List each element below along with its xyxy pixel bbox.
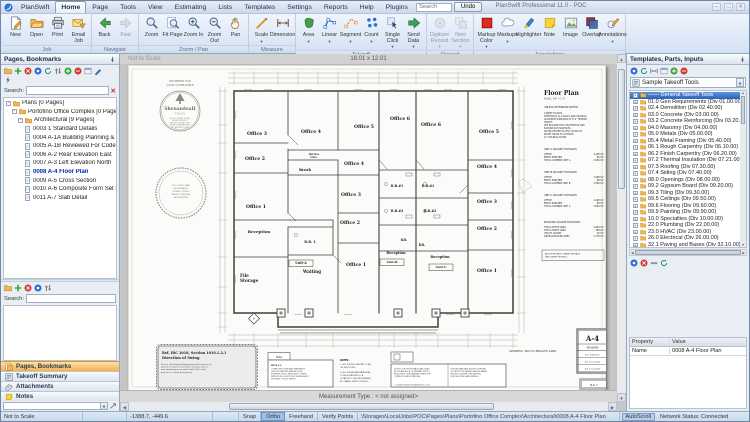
sheet-text: REVISIONS xyxy=(587,347,599,350)
expander-icon[interactable]: + xyxy=(633,210,638,215)
scroll-down-icon[interactable]: ▼ xyxy=(617,393,626,402)
room-label: Waiting xyxy=(302,269,321,274)
dropdown-arrow-icon: ▾ xyxy=(349,39,351,45)
refresh-icon[interactable] xyxy=(660,259,668,267)
ribbon-group-takeoff: Area▾ Linear▾ Segment▾ Count▾ xyxy=(296,14,427,53)
menu-tab-strip: PlanSwift Home Page Tools View Estimatin… xyxy=(15,1,414,13)
quick-action-icon[interactable] xyxy=(4,76,12,84)
expander-icon[interactable]: + xyxy=(633,100,638,105)
expander-icon[interactable]: - xyxy=(18,118,23,123)
folder-icon xyxy=(640,138,647,144)
remove-circle-icon[interactable] xyxy=(680,67,688,75)
pages-tree: - Plans [0 Pages] - Portofino Office Com… xyxy=(3,97,117,279)
template-tree-item[interactable]: + 09.2 Gypsum Board (Div 09.20.00) xyxy=(630,183,746,190)
sheet-text: CODE COMPLIANCE xyxy=(166,83,194,87)
sort-icon[interactable] xyxy=(44,284,52,292)
sheet-text: BUILDING SQUARE FOOTAGES: xyxy=(544,221,581,224)
folder-icon xyxy=(640,190,647,196)
expander-icon[interactable]: + xyxy=(633,126,638,131)
sheet-text: 10' CEILINGS DOWN xyxy=(544,136,566,139)
takeoff-tools-icon xyxy=(632,79,640,87)
verify-points-mode[interactable]: Verify Points xyxy=(318,412,358,421)
sheet-text: TOTAL COVERED UNIT A xyxy=(544,159,571,162)
dimension-icon xyxy=(276,16,290,33)
pages-bookmarks-panel: Pages, Bookmarks Search: xyxy=(1,54,120,411)
sheet-text: REVIEW DOES NOT xyxy=(172,120,187,122)
pan-hand-icon xyxy=(229,16,243,33)
dropdown-arrow-icon: ▾ xyxy=(370,39,372,45)
annotations-button[interactable]: Annotations▾ xyxy=(602,15,623,50)
dropdown-arrow-icon: ▾ xyxy=(611,39,613,45)
page-tree-item[interactable]: - Architectural [9 Pages] xyxy=(4,116,116,125)
email-job-button[interactable]: Email Job xyxy=(68,15,89,45)
linear-icon xyxy=(323,16,337,33)
zoom-in-button[interactable]: Zoom In xyxy=(183,15,204,45)
scroll-right-icon[interactable]: ▶ xyxy=(608,402,617,411)
room-label: R.R. 1 xyxy=(304,240,316,244)
back-button[interactable]: Back xyxy=(94,15,115,45)
tab-estimating[interactable]: Estimating xyxy=(169,1,213,13)
property-row[interactable]: Name 0008 A-4 Floor Plan xyxy=(630,347,746,356)
expander-icon[interactable]: - xyxy=(12,109,17,114)
single-click-button[interactable]: Single Click▾ xyxy=(382,15,403,50)
ribbon-group-navigate: Back Fwd Navigate xyxy=(92,14,139,53)
scroll-down-icon[interactable]: ▼ xyxy=(741,243,744,247)
expander-icon[interactable]: + xyxy=(633,132,638,137)
digitizer-record-button[interactable]: Digitizer Record▾ xyxy=(429,15,450,50)
accordion-notes[interactable]: Notes xyxy=(1,391,119,401)
room-label: R.R.#2 xyxy=(391,209,403,213)
dropdown-arrow-icon: ▾ xyxy=(438,44,440,50)
dropdown-arrow-icon: ▾ xyxy=(260,39,262,45)
room-label: Unit-B xyxy=(386,260,398,264)
new-window-icon[interactable] xyxy=(84,67,92,75)
note-button[interactable]: Note xyxy=(539,15,560,50)
count-button[interactable]: Count▾ xyxy=(361,15,382,50)
record-icon[interactable] xyxy=(34,284,42,292)
delete-icon[interactable] xyxy=(640,259,648,267)
room-label: Kit. xyxy=(419,243,426,247)
room-label: Office 3 xyxy=(247,131,267,137)
remove-circle-icon[interactable] xyxy=(74,67,82,75)
new-section-button[interactable]: New Section▾ xyxy=(450,15,471,50)
add-circle-icon[interactable] xyxy=(64,67,72,75)
scroll-left-icon[interactable]: ◀ xyxy=(631,251,634,255)
property-value[interactable]: 0008 A-4 Floor Plan xyxy=(670,348,746,354)
ribbon-group-job: New Open Print Email Job Job xyxy=(3,14,92,53)
record-icon[interactable] xyxy=(630,67,638,75)
templates-vertical-scrollbar[interactable]: ▲ ▼ xyxy=(740,91,746,247)
tab-settings[interactable]: Settings xyxy=(281,1,318,13)
scroll-left-icon[interactable]: ◀ xyxy=(120,402,129,411)
expander-icon[interactable]: + xyxy=(633,93,638,98)
sheet-text: direction of egress travel where serving… xyxy=(161,366,209,369)
folder-icon xyxy=(25,117,32,124)
expander-icon[interactable]: + xyxy=(633,243,638,248)
zoom-icon xyxy=(145,16,159,33)
template-tree-item[interactable]: + 05.4 Metal Framing (Div 05.40.00) xyxy=(630,138,746,145)
tab-plugins[interactable]: Plugins xyxy=(380,1,414,13)
sheet-text: 1,584 S.F. xyxy=(593,159,604,162)
sheet-text: ON PHOTOCELL. xyxy=(340,367,357,369)
ribbon-group-annotations: Markup Color▾ Markups▾ Highlighter Note xyxy=(474,14,626,53)
sheet-text: ANY REQUIRED xyxy=(174,196,189,199)
room-label: R.R.#1 xyxy=(391,184,403,188)
canvas-scale-label: Not to Scale xyxy=(128,54,161,65)
sheet-text: NOTE #1: xyxy=(271,365,282,367)
collapse-icon[interactable] xyxy=(650,259,658,267)
drawing-canvas: Not to Scale 18.01 x 12.01 xyxy=(120,54,626,411)
page-icon xyxy=(24,134,31,141)
scale-icon xyxy=(255,16,269,33)
sheet-text: 1,584 S.F. xyxy=(593,205,604,208)
dropdown-arrow-icon: ▾ xyxy=(328,39,330,45)
room-label: Office 5 xyxy=(479,129,499,135)
sheet-text: A.G. 8-28-2021 xyxy=(585,354,600,357)
page-tree-item[interactable]: 0006 A-2 Rear Elevation East xyxy=(4,151,116,160)
room-label: Reception xyxy=(248,229,271,234)
vertical-scroll-thumb[interactable] xyxy=(618,69,625,189)
add-page-icon[interactable] xyxy=(14,67,22,75)
expander-icon[interactable]: + xyxy=(633,119,638,124)
folder-icon xyxy=(640,157,647,163)
page-tree-item[interactable]: 0007 A-3 Left Elevation North xyxy=(4,159,116,168)
tab-home[interactable]: Home xyxy=(55,1,86,13)
expander-icon[interactable]: + xyxy=(633,197,638,202)
page-tree-item[interactable]: 0009 A-5 Cross Section xyxy=(4,176,116,185)
ortho-mode[interactable]: Ortho xyxy=(261,412,285,421)
pin-icon[interactable] xyxy=(739,56,746,63)
fit-page-button[interactable]: Fit Page xyxy=(162,15,183,45)
count-icon xyxy=(365,16,379,33)
pages-toolbar-row2 xyxy=(1,76,119,85)
room-label: Office 4 xyxy=(301,129,322,135)
vertical-scroll-thumb[interactable] xyxy=(741,96,745,124)
folder-icon xyxy=(640,222,647,228)
sheet-text: LOCATION TO BE DETERMINED xyxy=(340,377,371,380)
zoom-button[interactable]: Zoom xyxy=(141,15,162,45)
horizontal-scroll-thumb[interactable] xyxy=(229,403,494,410)
value-column-header[interactable]: Value xyxy=(670,339,746,345)
bookmarks-toolbar xyxy=(1,282,119,293)
note-icon xyxy=(543,16,557,33)
folder-icon xyxy=(640,209,647,215)
sheet-text: persons or a Group H occupancy. xyxy=(161,371,193,374)
template-tree-item[interactable]: + 03.2 Concrete Reinforcing (Div 03.20.0… xyxy=(630,118,746,125)
accordion-pages-bookmarks[interactable]: Pages, Bookmarks xyxy=(1,361,119,371)
expander-icon[interactable]: + xyxy=(633,171,638,176)
markup-color-button[interactable]: Markup Color▾ xyxy=(476,15,497,50)
folder-icon xyxy=(640,99,647,105)
sheet-text: UNLESS OTHERWISE NOTED: xyxy=(544,106,579,109)
property-column-header[interactable]: Property xyxy=(630,339,670,345)
scale-button[interactable]: Scale▾ xyxy=(251,15,272,45)
templates-panel-title: Templates, Parts, Inputs xyxy=(630,56,703,63)
room-label: Office 6 xyxy=(421,122,441,128)
horizontal-scroll-thumb[interactable] xyxy=(635,250,742,255)
record-icon[interactable] xyxy=(34,67,42,75)
folder-icon xyxy=(640,118,647,124)
accordion-attachments[interactable]: Attachments xyxy=(1,381,119,391)
expander-icon[interactable]: + xyxy=(633,145,638,150)
folder-icon xyxy=(640,105,647,111)
folder-icon xyxy=(640,203,647,209)
folder-icon[interactable] xyxy=(4,67,12,75)
sheet-text: 2. ALL PHONE AND DATA WIRE xyxy=(340,371,371,374)
templates-tree: + —— General Takeoff Tools + 01.0 Gen Re… xyxy=(630,92,746,248)
folder-icon xyxy=(640,131,647,137)
record-icon[interactable] xyxy=(630,259,638,267)
expander-icon[interactable]: + xyxy=(633,178,638,183)
page-tree-item[interactable]: 0004 A-1A Building Planning & Des... xyxy=(4,133,116,142)
panel-combo-box[interactable]: ▾ xyxy=(3,402,108,410)
room-label: Office 2 xyxy=(245,156,265,162)
property-grid: Property Value Name 0008 A-4 Floor Plan xyxy=(629,337,747,409)
blueprint-floor-plan[interactable]: Office 3Office 2Office 1ReceptionFileSto… xyxy=(128,65,606,391)
print-button[interactable]: Print xyxy=(47,15,68,45)
sheet-text: Direction of Swing xyxy=(162,356,200,360)
scroll-up-icon[interactable]: ▲ xyxy=(741,91,744,95)
room-label: Reception xyxy=(386,251,406,255)
folder-icon xyxy=(640,177,647,183)
resize-grip-icon[interactable] xyxy=(109,402,117,410)
tab-page[interactable]: Page xyxy=(86,1,114,13)
expander-icon[interactable]: - xyxy=(6,101,11,106)
templates-toolbar xyxy=(627,65,749,76)
sheet-text: 1,584 S.F. xyxy=(593,182,604,185)
expander-icon[interactable]: + xyxy=(633,191,638,196)
dimension-button[interactable]: Dimension xyxy=(272,15,293,45)
template-tree-item[interactable]: + 32.1 Paving and Bases (Div 32.10.00) xyxy=(630,242,746,249)
pin-icon[interactable] xyxy=(109,56,116,63)
clear-search-icon[interactable]: ✕ xyxy=(111,87,116,95)
takeoff-tools-dropdown[interactable]: Sample Takeoff Tools ▾ xyxy=(630,77,746,88)
page-tree-item[interactable]: 0011 A-7 Slab Detail xyxy=(4,194,116,203)
markups-cloud-icon xyxy=(501,16,515,33)
template-tree-item[interactable]: + 01.0 Gen Requirements (Div 01.00.00) xyxy=(630,99,746,106)
expander-icon[interactable]: + xyxy=(633,230,638,235)
ribbon: New Open Print Email Job Job xyxy=(1,14,749,54)
page-size-label: 18.01 x 12.01 xyxy=(350,56,386,62)
page-tree-item[interactable]: 0008 A-4 Floor Plan xyxy=(4,168,116,177)
zoom-out-button[interactable]: Zoom Out xyxy=(204,15,225,45)
markup-color-icon xyxy=(480,16,494,33)
area-icon xyxy=(302,16,316,33)
room-label: Office 2 xyxy=(340,220,360,226)
sheet-text: UTIL. CLOSET SHALL xyxy=(171,184,191,187)
bookmarks-search-input[interactable] xyxy=(26,294,116,303)
scroll-right-icon[interactable]: ▶ xyxy=(742,251,745,255)
freehand-mode[interactable]: Freehand xyxy=(285,412,318,421)
takeoff-summary-icon xyxy=(5,373,13,381)
pages-search-input[interactable] xyxy=(26,86,109,95)
blueprint-page[interactable]: Office 3Office 2Office 1ReceptionFileSto… xyxy=(128,65,606,391)
highlighter-icon xyxy=(522,16,536,33)
single-click-icon xyxy=(386,16,400,33)
planswift-window: PlanSwift Home Page Tools View Estimatin… xyxy=(0,0,750,422)
sheet-text: A-4 xyxy=(585,334,599,343)
page-icon xyxy=(24,160,31,167)
room-label: Unit-C xyxy=(436,265,448,269)
add-bookmark-icon[interactable] xyxy=(14,284,22,292)
close-button[interactable]: ✕ xyxy=(736,3,745,11)
expander-icon[interactable]: + xyxy=(633,184,638,189)
page-icon xyxy=(24,169,31,176)
templates-parts-inputs-panel: Templates, Parts, Inputs Sample Takeoff … xyxy=(626,54,749,411)
template-tree-item[interactable]: + 06.1 Rough Carpentry (Div 06.10.00) xyxy=(630,144,746,151)
tab-view[interactable]: View xyxy=(142,1,169,13)
sheet-text: FROM COMPLYING WITH xyxy=(170,125,190,127)
tab-planswift[interactable]: PlanSwift xyxy=(15,1,55,13)
edit-icon[interactable] xyxy=(94,67,102,75)
page-tree-item[interactable]: 0010 A-6 Composite Form Set Plan xyxy=(4,185,116,194)
send-data-button[interactable]: Send Data▾ xyxy=(403,15,424,50)
folder-icon xyxy=(640,235,647,241)
expander-icon[interactable]: + xyxy=(633,204,638,209)
page-tree-item[interactable]: 0005 A-1B Reviewed For Code Co... xyxy=(4,142,116,151)
sheet-text: ADDRESS: 284 CO ENGLISH LANE. xyxy=(509,349,557,353)
ribbon-group-label: Measure xyxy=(249,45,295,53)
resize-columns-icon[interactable] xyxy=(650,67,658,75)
open-button[interactable]: Open xyxy=(26,15,47,45)
maximize-button[interactable]: □ xyxy=(724,3,733,11)
page-tree-item[interactable]: - Plans [0 Pages] xyxy=(4,99,116,108)
folder-icon xyxy=(640,112,647,118)
tab-tools[interactable]: Tools xyxy=(114,1,142,13)
sheet-text: 4,778 S.F. xyxy=(593,235,604,238)
pages-icon xyxy=(5,363,13,371)
refresh-icon[interactable] xyxy=(640,67,648,75)
expander-icon[interactable]: + xyxy=(633,236,638,241)
minimize-button[interactable]: ─ xyxy=(712,3,721,11)
room-label: Office 3 xyxy=(341,192,361,198)
overlay-icon xyxy=(585,16,599,33)
sheet-text: GROSS BUILDING AREA xyxy=(544,235,570,238)
expander-icon[interactable]: + xyxy=(633,223,638,228)
sheet-text: UNIT C SQUARE FOOTAGES: xyxy=(544,194,577,197)
template-tree-item[interactable]: + 06.2 Finish Carpentry (Div 06.20.00) xyxy=(630,151,746,158)
refresh-icon[interactable] xyxy=(44,67,52,75)
sheet-text: BY OWNER. VERIFY IN FIELD. xyxy=(340,381,369,383)
new-button[interactable]: New xyxy=(5,15,26,45)
image-icon xyxy=(564,16,578,33)
template-tree-item[interactable]: + 07.2 Thermal Insulation (Div 07.21.00) xyxy=(630,157,746,164)
sheet-text: 1. ALL PORCH LIGHTING TO BE xyxy=(340,363,371,366)
property-name: Name xyxy=(630,348,670,354)
window-controls: ─ □ ✕ xyxy=(712,3,745,11)
sheet-text: A.G. 10-11-2021 xyxy=(585,361,601,364)
tab-lists[interactable]: Lists xyxy=(212,1,238,13)
chevron-down-icon[interactable]: ▾ xyxy=(736,78,744,87)
expander-icon[interactable]: + xyxy=(633,165,638,170)
tab-templates[interactable]: Templates xyxy=(238,1,281,13)
expander-icon[interactable]: + xyxy=(633,113,638,118)
delete-icon[interactable] xyxy=(24,284,32,292)
ribbon-group-zoom-pan: Zoom Fit Page Zoom In Zoom Out xyxy=(139,14,249,53)
sheet-text: TOTAL COVERED UNIT B xyxy=(544,182,571,185)
room-label: Reception xyxy=(430,255,450,259)
folder-icon xyxy=(640,92,647,98)
sheet-text: Floor Plan xyxy=(544,90,579,97)
new-window-icon[interactable] xyxy=(660,67,668,75)
folder-icon[interactable] xyxy=(4,284,12,292)
linear-button[interactable]: Linear▾ xyxy=(319,15,340,50)
templates-horizontal-scrollbar[interactable]: ◀ ▶ xyxy=(629,249,747,256)
tab-reports[interactable]: Reports xyxy=(318,1,354,13)
folder-icon xyxy=(640,151,647,157)
canvas-horizontal-scrollbar[interactable]: ◀ ▶ xyxy=(120,402,617,411)
page-tree-item[interactable]: - Portofino Office Complex [0 Pages] xyxy=(4,108,116,117)
sheet-text: TO BE HOME RUN TO A xyxy=(340,374,364,377)
area-button[interactable]: Area▾ xyxy=(298,15,319,50)
expander-icon[interactable]: + xyxy=(633,106,638,111)
canvas-vertical-scrollbar[interactable]: ▲ ▼ xyxy=(617,54,626,402)
parts-toolbar xyxy=(627,257,749,268)
folder-icon xyxy=(19,108,26,115)
sheet-text: UNIT A SQUARE FOOTAGES: xyxy=(544,148,577,151)
search-label: Search: xyxy=(4,296,24,302)
accordion-takeoff-summary[interactable]: Takeoff Summary xyxy=(1,371,119,381)
room-label: Break xyxy=(299,168,312,172)
bookmarks-list[interactable] xyxy=(3,305,117,361)
image-button[interactable]: Image xyxy=(560,15,581,50)
autoscroll-toggle[interactable]: AutoScroll xyxy=(622,413,656,421)
expander-icon[interactable]: + xyxy=(633,158,638,163)
page-icon xyxy=(24,194,31,201)
folder-icon xyxy=(640,125,647,131)
templates-tree-container: + —— General Takeoff Tools + 01.0 Gen Re… xyxy=(629,90,747,248)
chevron-down-icon[interactable]: ▾ xyxy=(100,403,107,409)
sheet-text: MAKE NO DISPOSAL xyxy=(172,193,192,196)
delete-icon[interactable] xyxy=(24,67,32,75)
expander-icon[interactable]: + xyxy=(633,217,638,222)
page-tree-item[interactable]: 0003 1 Standard Details xyxy=(4,125,116,134)
forward-button[interactable]: Fwd xyxy=(115,15,136,45)
sort-icon[interactable] xyxy=(54,67,62,75)
folder-icon xyxy=(640,164,647,170)
expander-icon[interactable]: + xyxy=(633,152,638,157)
ribbon-group-label: Zoom / Pan xyxy=(139,45,248,53)
annotations-icon xyxy=(606,16,620,33)
room-label: Unit-A xyxy=(295,261,307,265)
room-label: Office 4 xyxy=(344,161,365,167)
highlighter-button[interactable]: Highlighter xyxy=(518,15,539,50)
snap-mode[interactable]: Snap xyxy=(239,412,261,421)
dropdown-arrow-icon: ▾ xyxy=(506,39,508,45)
segment-button[interactable]: Segment▾ xyxy=(340,15,361,50)
forward-arrow-icon xyxy=(119,16,133,33)
note-icon xyxy=(5,393,13,401)
room-label: Office 3 xyxy=(477,199,497,205)
add-circle-icon[interactable] xyxy=(670,67,678,75)
room-label: Office 4 xyxy=(477,164,498,170)
tab-help[interactable]: Help xyxy=(354,1,380,13)
ribbon-search-input[interactable] xyxy=(416,3,452,12)
ribbon-group-measure: Scale▾ Dimension Measure xyxy=(249,14,296,53)
pan-button[interactable]: Pan xyxy=(225,15,246,45)
sheet-text: BE ELIMINATED. xyxy=(173,187,188,190)
back-arrow-icon xyxy=(98,16,112,33)
search-label: Search: xyxy=(4,88,24,94)
folder-icon xyxy=(640,229,647,235)
expander-icon[interactable]: + xyxy=(633,139,638,144)
sheet-text: TOTAL COVERED UNIT C xyxy=(544,205,571,208)
ribbon-group-label: Navigate xyxy=(92,45,138,53)
folder-icon xyxy=(640,170,647,176)
page-icon xyxy=(24,143,31,150)
scroll-up-icon[interactable]: ▲ xyxy=(617,54,626,63)
sheet-text: T E X A S xyxy=(175,113,185,116)
